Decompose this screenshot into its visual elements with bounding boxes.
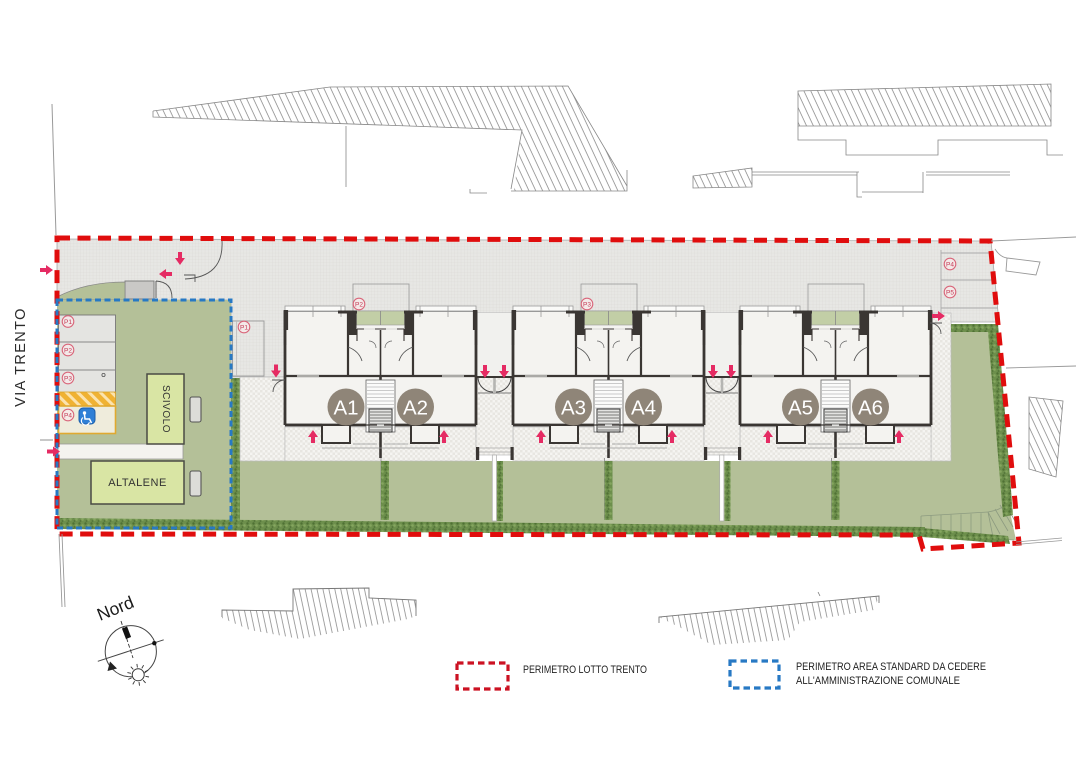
- svg-text:P2: P2: [64, 348, 72, 355]
- svg-text:P4: P4: [946, 262, 954, 269]
- svg-text:P3: P3: [583, 302, 591, 309]
- svg-text:P4: P4: [64, 413, 72, 420]
- svg-text:PERIMETRO LOTTO TRENTO: PERIMETRO LOTTO TRENTO: [523, 664, 647, 676]
- svg-text:A1: A1: [333, 397, 358, 420]
- svg-text:P1: P1: [240, 325, 248, 332]
- svg-text:SCIVOLO: SCIVOLO: [160, 385, 171, 433]
- svg-text:A4: A4: [631, 397, 656, 420]
- svg-text:PERIMETRO AREA STANDARD DA CED: PERIMETRO AREA STANDARD DA CEDERE: [796, 661, 986, 673]
- svg-text:VIA TRENTO: VIA TRENTO: [13, 307, 29, 407]
- svg-text:A6: A6: [858, 397, 883, 420]
- svg-text:P2: P2: [355, 302, 363, 309]
- svg-text:A3: A3: [561, 397, 586, 420]
- svg-text:A2: A2: [403, 397, 428, 420]
- svg-text:P5: P5: [946, 290, 954, 297]
- svg-text:A5: A5: [788, 397, 813, 420]
- svg-text:ALTALENE: ALTALENE: [108, 477, 167, 489]
- svg-text:P3: P3: [64, 376, 72, 383]
- svg-text:P1: P1: [64, 319, 72, 326]
- svg-text:ALL'AMMINISTRAZIONE COMUNALE: ALL'AMMINISTRAZIONE COMUNALE: [796, 675, 960, 687]
